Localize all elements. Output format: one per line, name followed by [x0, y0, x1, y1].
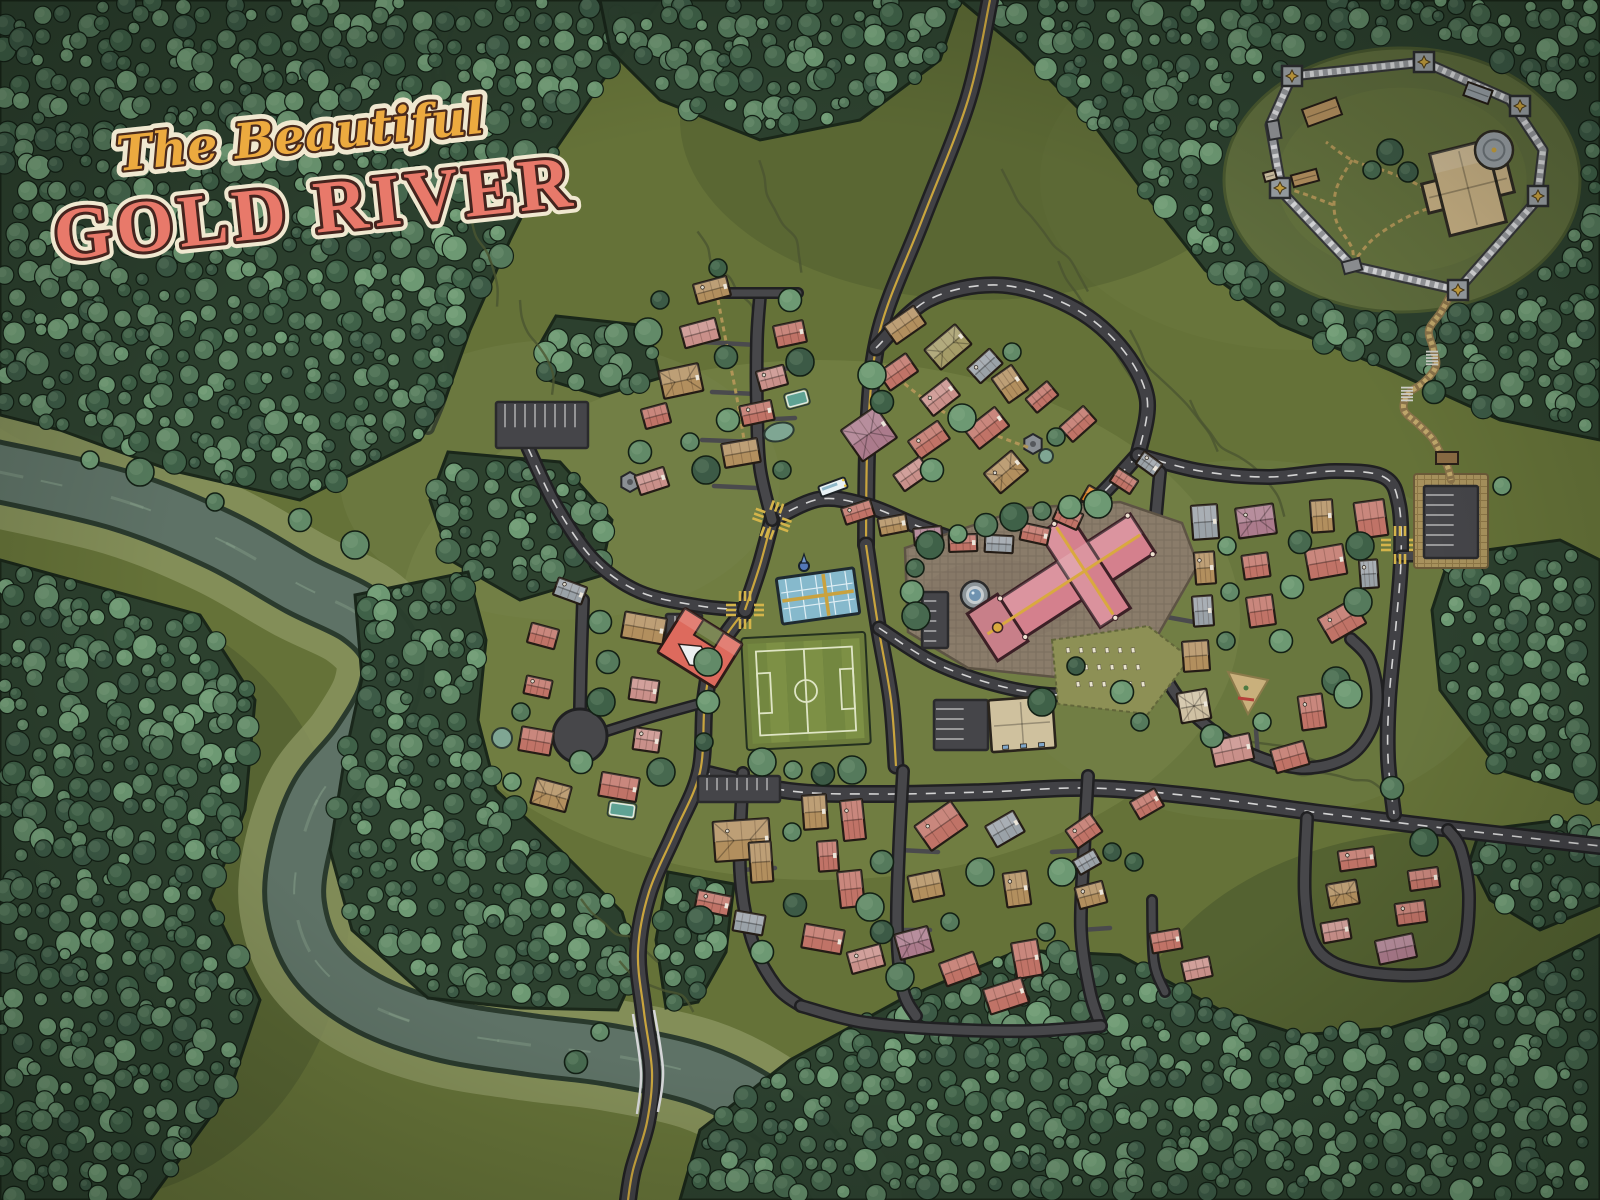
gold-river-town-map: The Beautiful GOLD RIVER The Beautiful G… — [0, 0, 1600, 1200]
map-stage: The Beautiful GOLD RIVER The Beautiful G… — [0, 0, 1600, 1200]
